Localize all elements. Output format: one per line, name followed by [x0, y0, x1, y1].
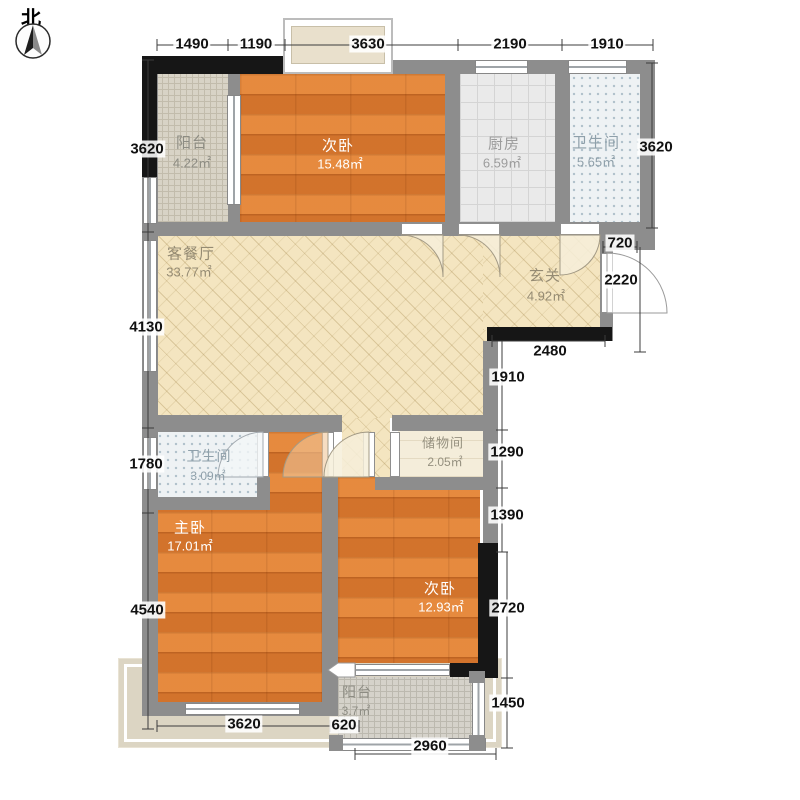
dim-label: 4540	[128, 602, 165, 619]
room-label-bathroom-bottom: 卫生间	[187, 449, 232, 463]
room-area-living-dining: 33.77㎡	[166, 266, 212, 279]
room-label-balcony-bottom: 阳台	[342, 685, 372, 699]
room-label-entry-hall: 玄关	[529, 269, 561, 284]
dim-line-2220	[634, 247, 646, 352]
room-label-bedroom-top: 次卧	[322, 139, 354, 154]
dim-label: 620	[329, 717, 358, 734]
dim-label: 2190	[491, 36, 528, 53]
dim-label: 1490	[173, 36, 210, 53]
room-label-master-bedroom: 主卧	[174, 521, 206, 536]
dim-label: 1910	[588, 36, 625, 53]
dim-label: 4130	[127, 319, 164, 336]
dim-label: 2720	[489, 600, 526, 617]
dim-label: 3620	[225, 716, 262, 733]
room-area-bathroom-top: 5.65㎡	[577, 156, 615, 169]
room-area-bedroom-bottom: 12.93㎡	[418, 601, 464, 614]
room-label-balcony-top: 阳台	[176, 136, 208, 151]
dim-label: 3620	[128, 141, 165, 158]
dim-label: 3630	[349, 36, 386, 53]
room-area-storage: 2.05㎡	[427, 456, 462, 468]
room-label-living-dining: 客餐厅	[167, 247, 215, 262]
room-area-balcony-top: 4.22㎡	[173, 157, 211, 170]
room-label-kitchen: 厨房	[488, 137, 520, 152]
room-area-entry-hall: 4.92㎡	[527, 290, 565, 303]
dim-label: 2960	[411, 738, 448, 755]
floor-plan: 北	[0, 0, 800, 800]
dim-line-left	[142, 60, 154, 729]
room-area-balcony-bottom: 3.7㎡	[342, 705, 371, 717]
dim-label: 1450	[489, 695, 526, 712]
room-area-bedroom-top: 15.48㎡	[317, 158, 363, 171]
dim-label: 3620	[637, 139, 674, 156]
room-area-kitchen: 6.59㎡	[483, 157, 521, 170]
dim-label: 720	[605, 235, 634, 252]
dim-line-1910-1290	[496, 341, 508, 488]
dim-label: 1780	[127, 456, 164, 473]
dim-label: 2480	[531, 343, 568, 360]
dim-label: 1390	[488, 507, 525, 524]
room-area-master-bedroom: 17.01㎡	[167, 540, 213, 553]
room-label-bathroom-top: 卫生间	[572, 136, 620, 151]
room-area-bathroom-bottom: 3.09㎡	[190, 470, 225, 482]
dim-line-2720-1450	[501, 552, 513, 748]
dim-label: 1190	[238, 36, 275, 53]
room-label-bedroom-bottom: 次卧	[424, 582, 456, 597]
dimension-lines-layer	[0, 0, 800, 800]
dim-label: 1910	[489, 369, 526, 386]
dim-line-top	[157, 39, 653, 51]
room-label-storage: 储物间	[422, 437, 464, 450]
dim-label: 2220	[602, 272, 639, 289]
dim-label: 1290	[488, 444, 525, 461]
